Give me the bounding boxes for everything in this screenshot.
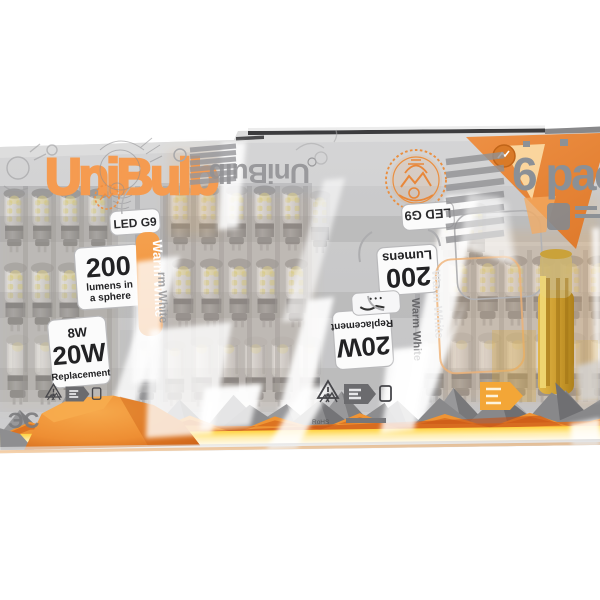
svg-text:20W: 20W	[51, 337, 107, 372]
svg-text:20W: 20W	[335, 330, 391, 364]
svg-text:UniBulb: UniBulb	[210, 158, 310, 189]
svg-text:200: 200	[85, 250, 132, 283]
svg-text:ЭC: ЭC	[8, 408, 40, 433]
svg-text:rm White: rm White	[155, 272, 171, 324]
svg-text:RoHS: RoHS	[312, 419, 330, 426]
svg-text:6 pack: 6 pack	[512, 148, 600, 200]
